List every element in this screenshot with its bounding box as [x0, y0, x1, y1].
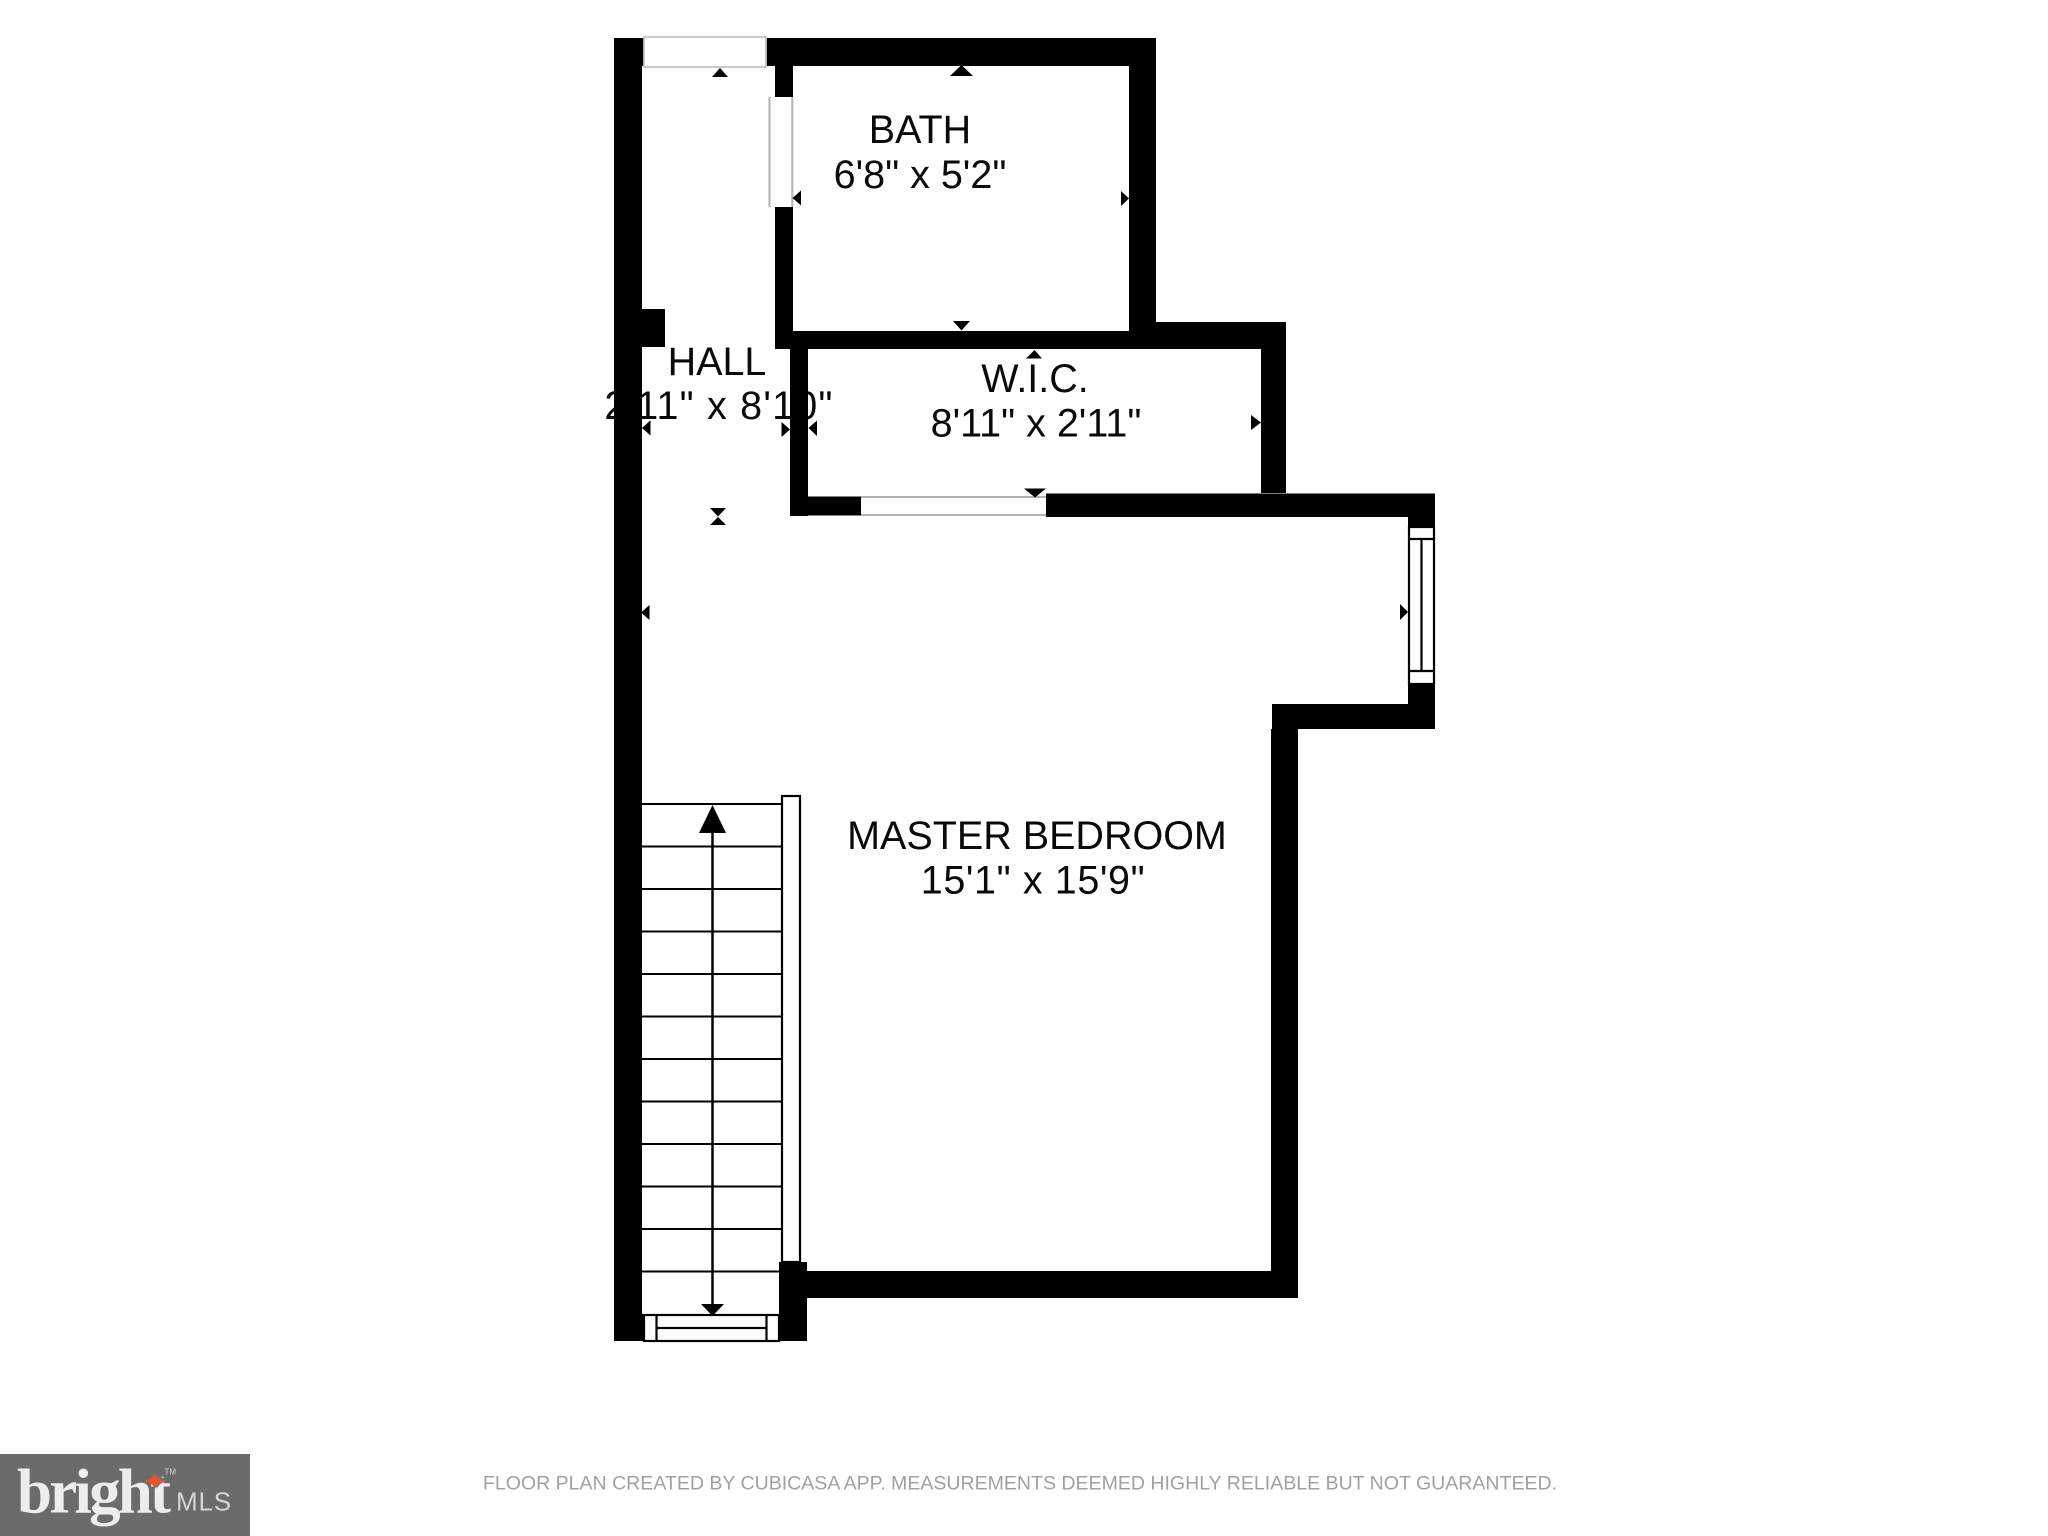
svg-text:bright: bright	[17, 1457, 171, 1527]
svg-text:8'11" x 2'11": 8'11" x 2'11"	[931, 402, 1142, 446]
svg-text:MASTER BEDROOM: MASTER BEDROOM	[847, 814, 1227, 858]
svg-text:FLOOR PLAN CREATED BY CUBICASA: FLOOR PLAN CREATED BY CUBICASA APP. MEAS…	[483, 1473, 1557, 1495]
svg-text:15'1" x 15'9": 15'1" x 15'9"	[921, 859, 1145, 903]
svg-text:TM: TM	[165, 1468, 177, 1477]
svg-text:6'8" x 5'2": 6'8" x 5'2"	[834, 153, 1007, 197]
svg-text:HALL: HALL	[668, 340, 767, 384]
svg-text:MLS: MLS	[176, 1487, 232, 1517]
svg-text:W.I.C.: W.I.C.	[981, 357, 1089, 401]
svg-text:BATH: BATH	[869, 108, 971, 152]
